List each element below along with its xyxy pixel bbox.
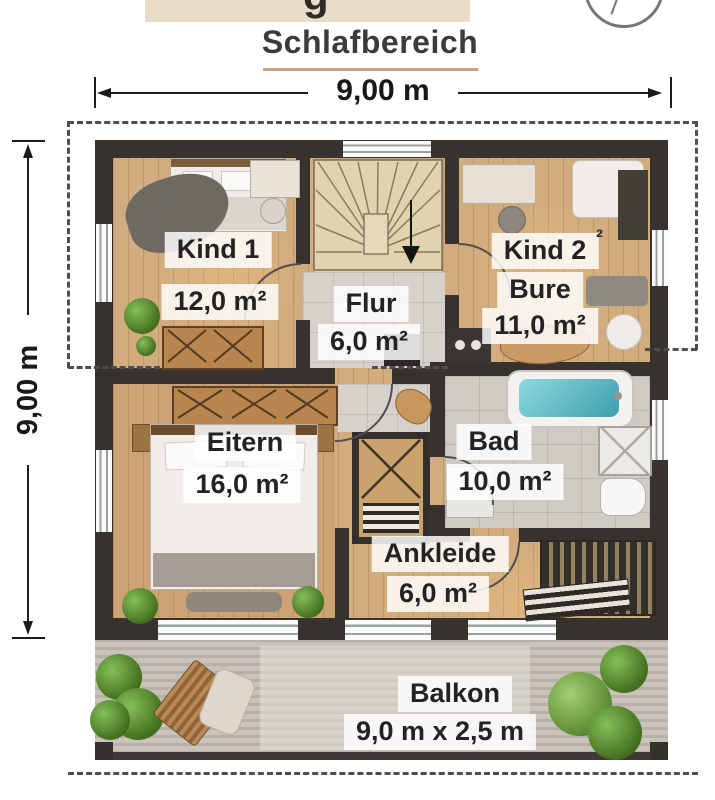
- room-label-kind1-name: Kind 1: [165, 232, 272, 268]
- dashed-boundary-bottom: [68, 772, 698, 775]
- kind2-sideboard: [586, 276, 648, 306]
- balcony-door-left: [158, 620, 298, 640]
- kind2-area-artifact: ²: [596, 226, 603, 250]
- room-label-kind2-name: Kind 2: [492, 233, 599, 269]
- window-top: [343, 141, 431, 157]
- window-left-eltern: [96, 450, 112, 532]
- room-label-balkon-area: 9,0 m x 2,5 m: [344, 714, 536, 750]
- dim-left-tick-top: [12, 140, 45, 142]
- dashed-boundary-left: [67, 121, 70, 368]
- room-label-eltern-name: Eitern: [195, 425, 296, 461]
- dim-left-arrow-down: [23, 621, 33, 635]
- dashed-boundary-right: [695, 121, 698, 350]
- room-label-flur-area: 6,0 m²: [318, 324, 420, 360]
- kind1-plant-small: [136, 336, 156, 356]
- kind1-chair: [260, 198, 286, 224]
- kind1-desk: [250, 160, 300, 198]
- dashed-boundary-top: [68, 121, 698, 124]
- kind1-dresser: [162, 326, 264, 370]
- shaft-closet: [352, 432, 430, 544]
- wall-eltern-ankleide: [335, 528, 349, 618]
- floor-plan-page: g Schlafbereich 9,00 m 9,00 m: [0, 0, 715, 800]
- window-right-bad: [652, 400, 668, 460]
- room-label-eltern-area: 16,0 m²: [183, 467, 300, 503]
- staircase-floor: [314, 160, 442, 272]
- room-label-bad-name: Bad: [456, 424, 531, 460]
- dashed-boundary-mid-left: [68, 366, 160, 369]
- cabinet-dish: [471, 340, 481, 350]
- kind2-wardrobe: [618, 170, 648, 240]
- dim-top-arrow-right: [648, 88, 662, 98]
- shower: [598, 426, 652, 476]
- eltern-bench: [186, 592, 282, 612]
- balcony-rail-bottom: [95, 752, 668, 760]
- room-label-kind1-area: 12,0 m²: [161, 284, 278, 320]
- balcony-plant-right: [600, 645, 648, 693]
- wall-left: [95, 140, 113, 640]
- room-label-flur-name: Flur: [334, 286, 409, 322]
- balcony-door-right: [468, 620, 556, 640]
- wall-kind1-eltern: [113, 368, 335, 384]
- balcony-plant-right: [588, 706, 642, 760]
- balcony-door-center: [345, 620, 431, 640]
- balcony-plant-left: [90, 700, 130, 740]
- dim-top-label: 9,00 m: [308, 73, 458, 109]
- dim-top-tick-right: [670, 77, 672, 108]
- shaft-ladder: [363, 503, 419, 533]
- cabinet-dish: [455, 340, 465, 350]
- wall-bad-left-a: [430, 376, 445, 457]
- wall-flur-kind2-a: [445, 158, 459, 244]
- bathtub-water: [519, 379, 619, 417]
- dim-top-tick-left: [94, 77, 96, 108]
- room-label-kind2-extra: Bure: [497, 272, 583, 308]
- eltern-plant-left: [122, 588, 158, 624]
- kind2-floor-plant: [606, 314, 642, 350]
- dashed-boundary-mid-center: [372, 366, 448, 369]
- dim-left-arrow-up: [23, 144, 33, 158]
- eltern-bed-throw: [153, 553, 315, 587]
- title-underline: [263, 68, 478, 71]
- eltern-plant-right: [292, 586, 324, 618]
- bathtub: [506, 370, 634, 428]
- dim-left-label: 9,00 m: [10, 315, 46, 465]
- kind2-desk: [462, 164, 536, 204]
- dashed-boundary-mid-right: [645, 348, 697, 351]
- balcony-post-left: [95, 742, 113, 760]
- toilet: [600, 478, 646, 516]
- clipped-title-fragment: g: [303, 0, 329, 20]
- eltern-wardrobe: [172, 386, 338, 426]
- page-title: Schlafbereich: [170, 24, 570, 61]
- wall-kind1-flur-b: [296, 320, 310, 368]
- room-label-kind2-area: 11,0 m²: [482, 308, 598, 344]
- compass-icon: [584, 0, 664, 28]
- balcony-post-right: [650, 742, 668, 760]
- room-label-ankleide-area: 6,0 m²: [387, 576, 489, 612]
- kind2-chair: [498, 206, 526, 234]
- room-label-bad-area: 10,0 m²: [446, 464, 563, 500]
- room-label-ankleide-name: Ankleide: [372, 536, 509, 572]
- dim-top-arrow-left: [97, 88, 111, 98]
- window-left-kind1: [96, 224, 112, 302]
- window-right-kind2: [652, 230, 668, 286]
- kind1-plant: [124, 298, 160, 334]
- kind1-bed-pillow: [221, 171, 251, 191]
- dim-left-tick-bottom: [12, 637, 45, 639]
- room-label-balkon-name: Balkon: [398, 676, 512, 712]
